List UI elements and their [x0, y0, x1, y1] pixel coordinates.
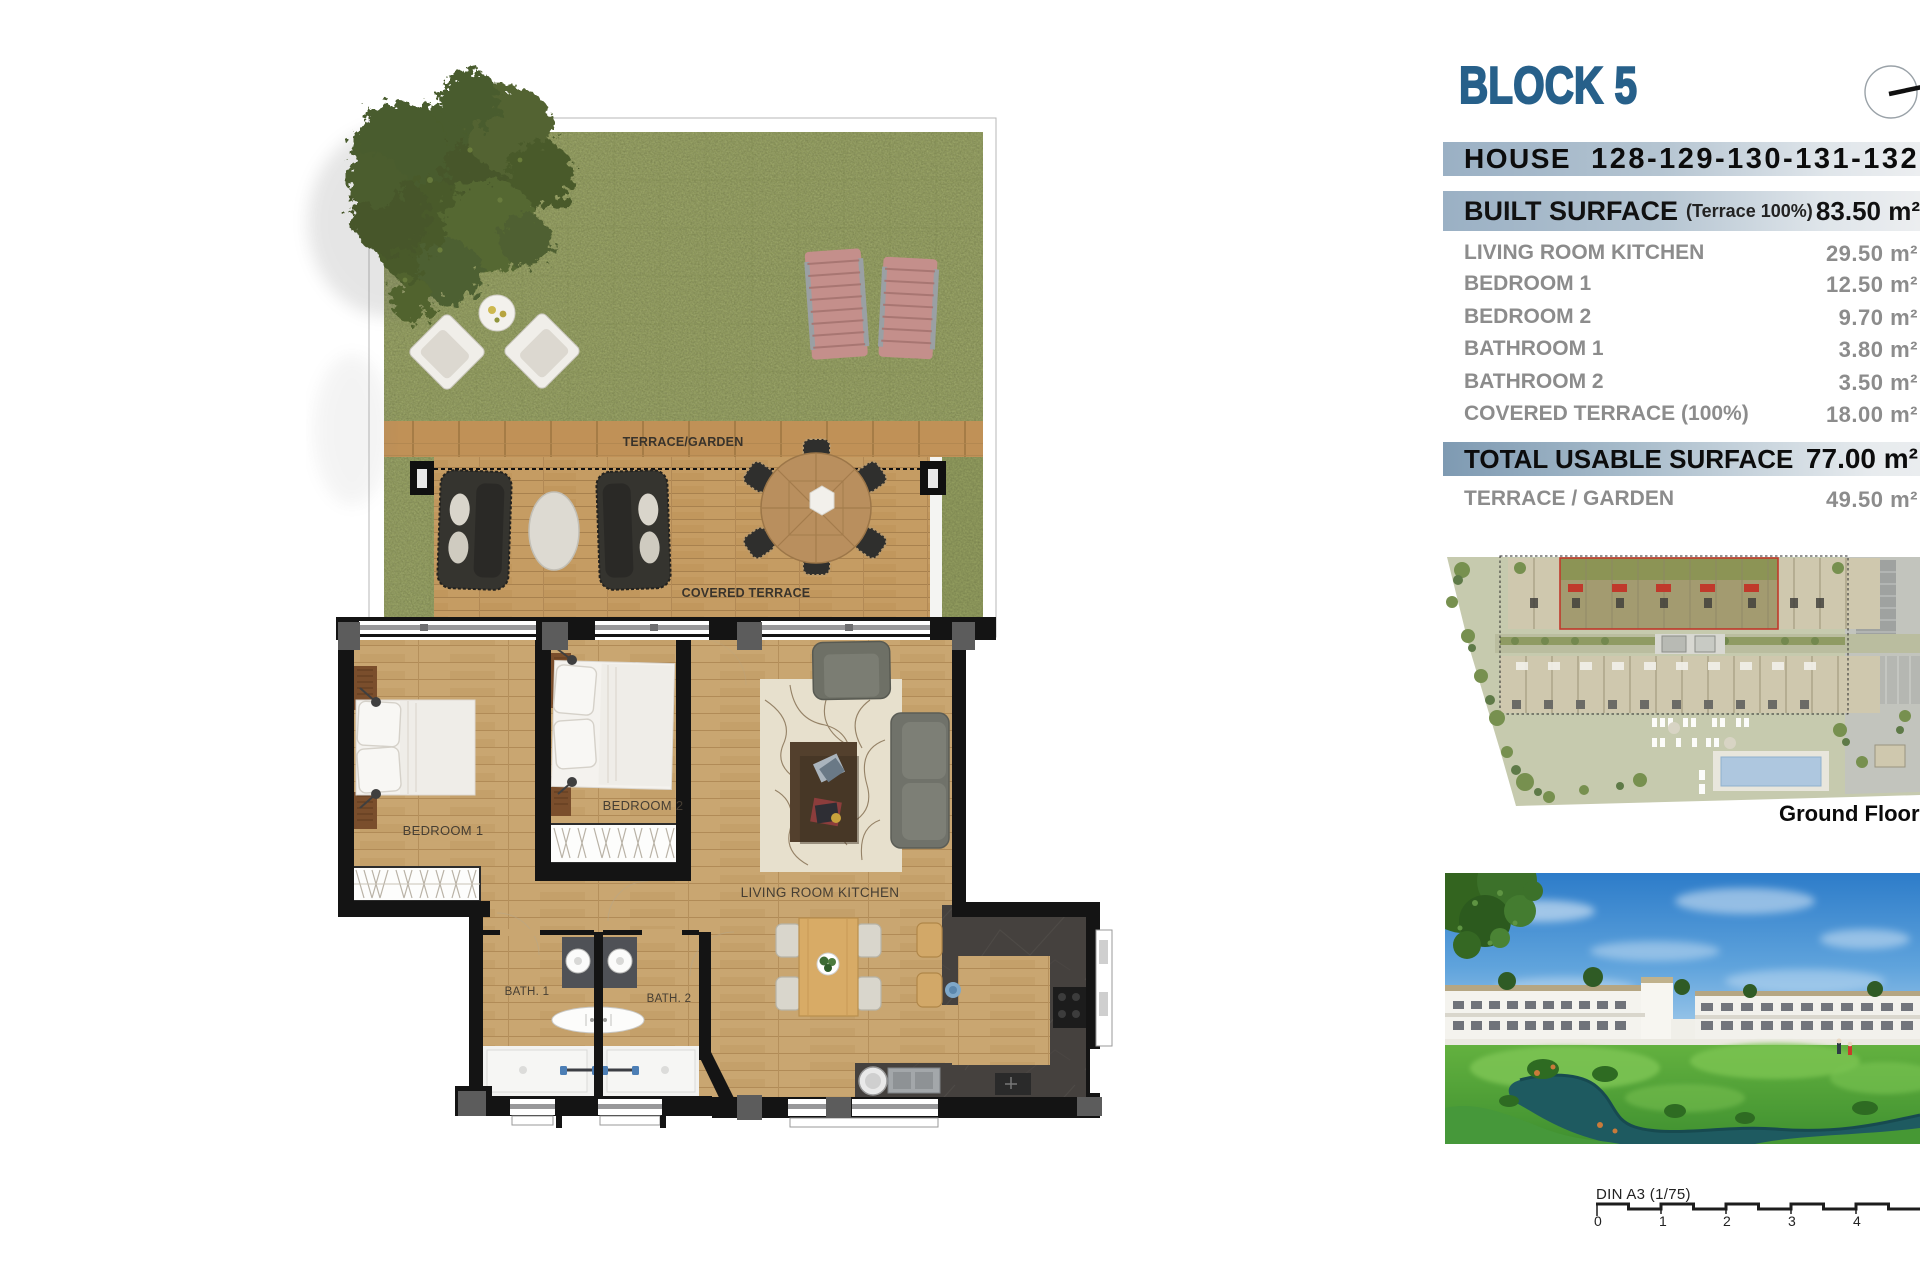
svg-text:BEDROOM 2: BEDROOM 2 [603, 798, 684, 813]
svg-text:BATH. 1: BATH. 1 [505, 986, 550, 998]
svg-text:BATH. 2: BATH. 2 [647, 993, 692, 1005]
svg-text:LIVING ROOM KITCHEN: LIVING ROOM KITCHEN [741, 885, 900, 900]
svg-text:TERRACE/GARDEN: TERRACE/GARDEN [623, 435, 744, 449]
svg-text:BEDROOM 1: BEDROOM 1 [403, 823, 484, 838]
svg-text:COVERED TERRACE: COVERED TERRACE [682, 586, 811, 600]
